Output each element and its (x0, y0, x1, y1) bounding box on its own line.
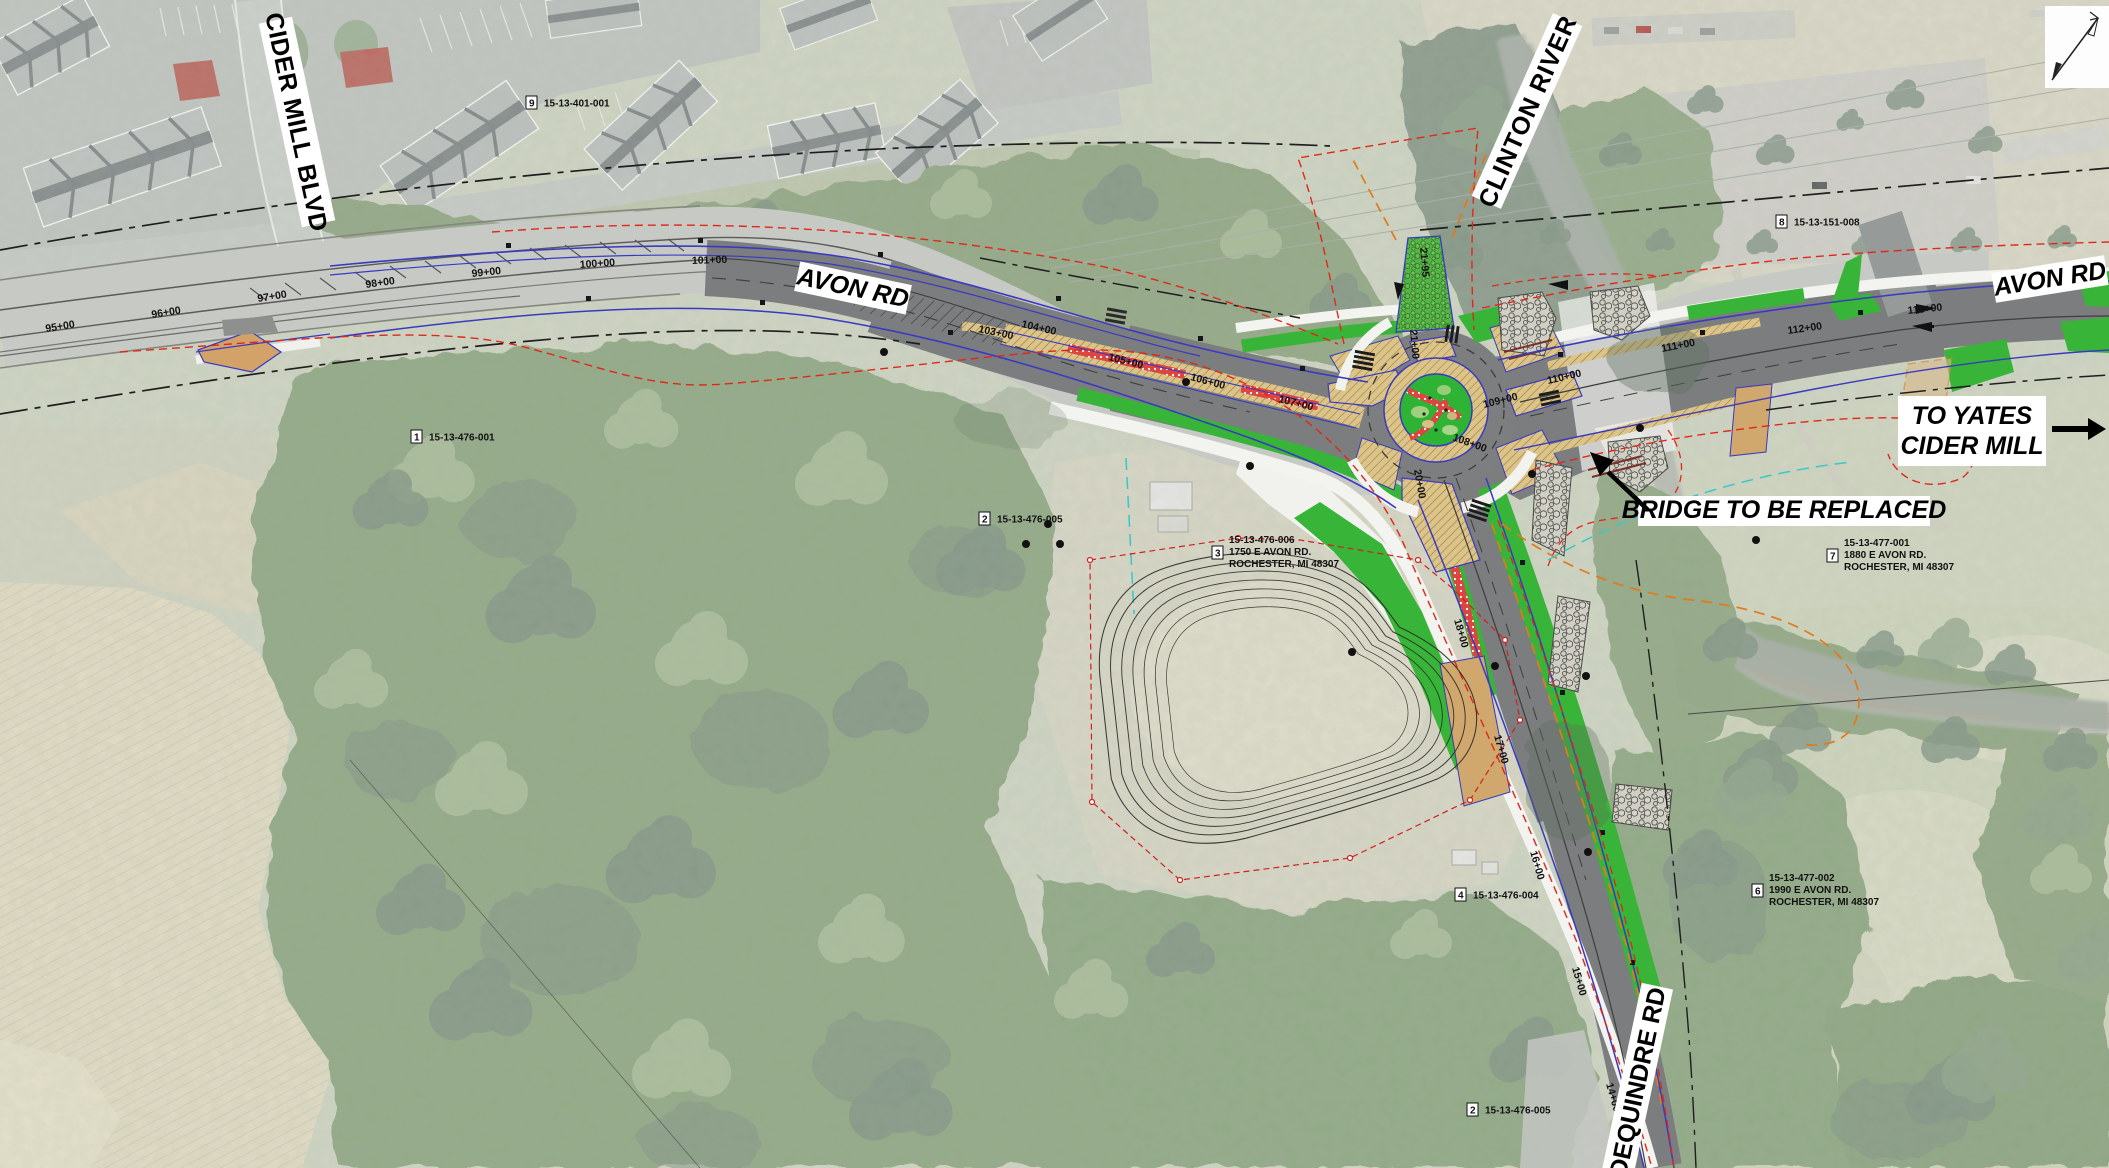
svg-text:101+00: 101+00 (692, 254, 728, 267)
svg-text:1: 1 (414, 433, 420, 444)
svg-text:CIDER MILL: CIDER MILL (1900, 432, 2043, 460)
svg-text:15-13-476-001: 15-13-476-001 (429, 433, 495, 444)
svg-text:15-13-476-006: 15-13-476-006 (1229, 535, 1295, 546)
svg-text:9: 9 (529, 99, 535, 110)
svg-text:BRIDGE TO BE REPLACED: BRIDGE TO BE REPLACED (1622, 496, 1947, 524)
svg-text:15-13-151-008: 15-13-151-008 (1794, 218, 1860, 229)
svg-text:2: 2 (1470, 1106, 1476, 1117)
svg-text:1990 E AVON RD.: 1990 E AVON RD. (1769, 885, 1851, 896)
svg-text:4: 4 (1458, 891, 1464, 902)
svg-text:100+00: 100+00 (579, 257, 615, 271)
svg-text:15-13-477-001: 15-13-477-001 (1844, 538, 1910, 549)
svg-text:TO YATES: TO YATES (1912, 402, 2033, 430)
svg-text:1880 E AVON RD.: 1880 E AVON RD. (1844, 550, 1926, 561)
svg-text:ROCHESTER, MI 48307: ROCHESTER, MI 48307 (1229, 559, 1339, 570)
svg-text:15-13-476-005: 15-13-476-005 (1485, 1106, 1551, 1117)
svg-text:8: 8 (1779, 218, 1785, 229)
svg-text:15-13-476-004: 15-13-476-004 (1473, 891, 1539, 902)
svg-text:15-13-401-001: 15-13-401-001 (544, 99, 610, 110)
svg-text:1750 E AVON RD.: 1750 E AVON RD. (1229, 547, 1311, 558)
svg-text:2: 2 (982, 515, 988, 526)
svg-text:ROCHESTER, MI 48307: ROCHESTER, MI 48307 (1844, 562, 1954, 573)
svg-text:15-13-476-005: 15-13-476-005 (997, 515, 1063, 526)
svg-text:ROCHESTER, MI 48307: ROCHESTER, MI 48307 (1769, 897, 1879, 908)
svg-text:15-13-477-002: 15-13-477-002 (1769, 873, 1835, 884)
svg-text:7: 7 (1830, 552, 1836, 563)
svg-text:6: 6 (1755, 887, 1761, 898)
svg-text:3: 3 (1215, 549, 1221, 560)
